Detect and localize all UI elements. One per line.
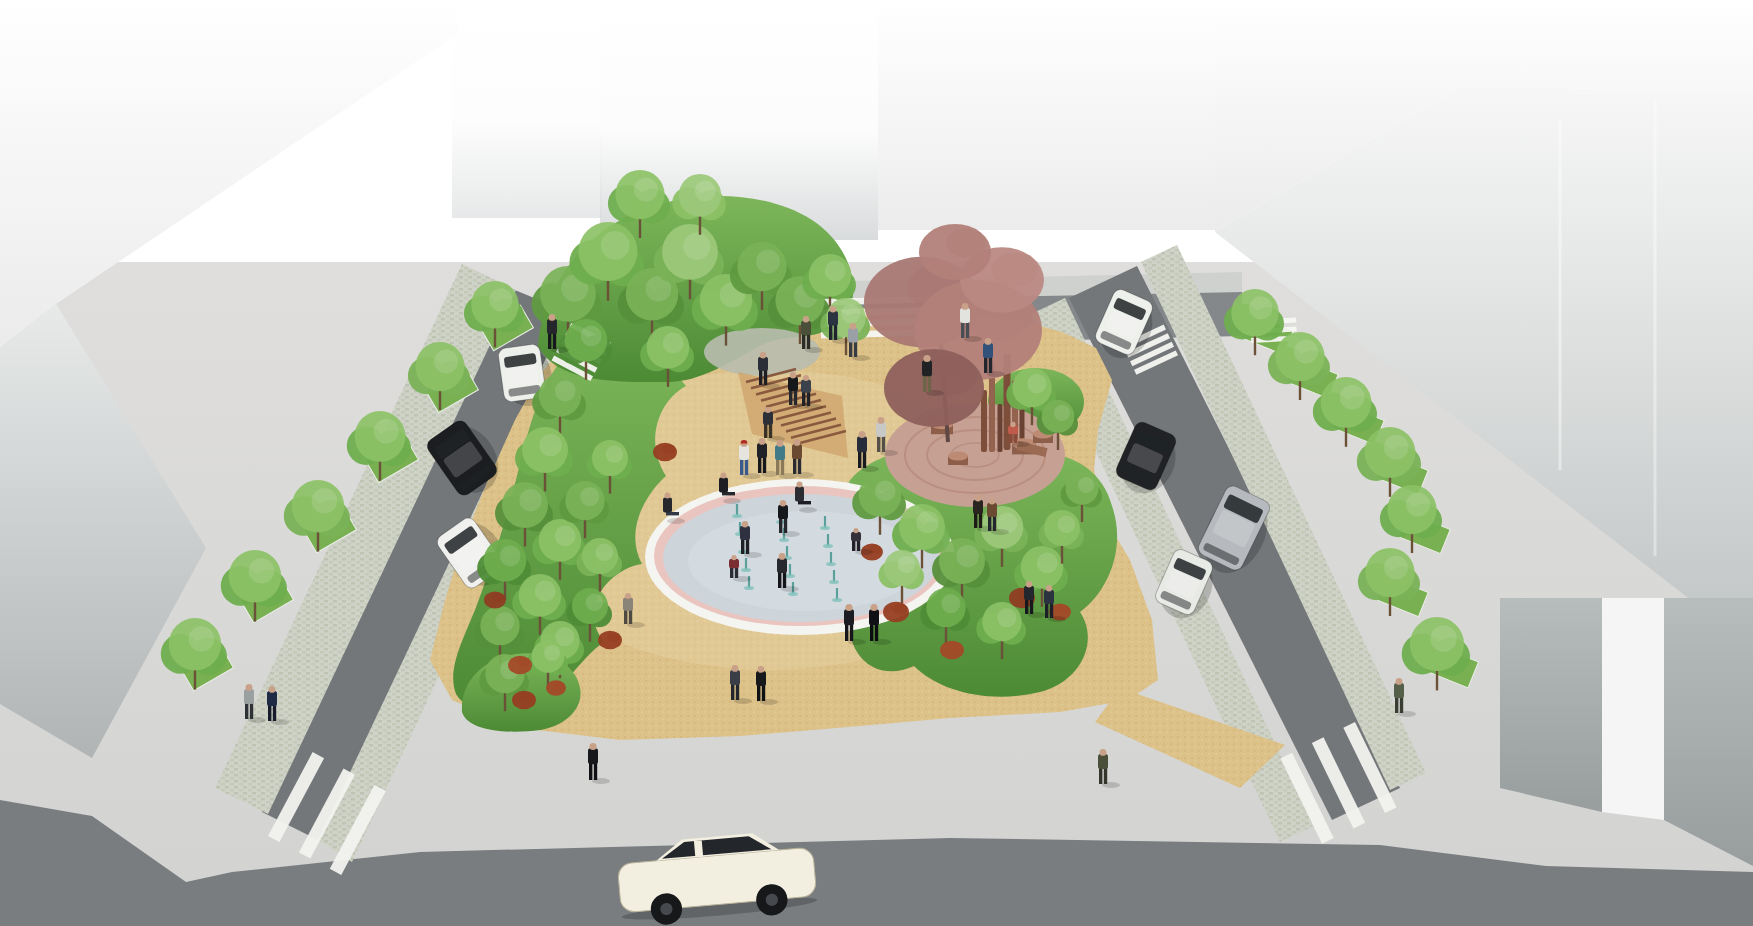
red-shrub bbox=[508, 656, 532, 675]
red-shrub bbox=[653, 443, 677, 462]
red-shrub bbox=[512, 691, 536, 710]
building-slab-sw-gray bbox=[1500, 598, 1602, 812]
maple-canopy bbox=[884, 349, 984, 427]
play-pole bbox=[998, 404, 1003, 452]
building-slab-sw-white bbox=[1602, 598, 1664, 820]
red-shrub bbox=[940, 641, 964, 660]
backdrop-building-left-hint bbox=[452, 0, 602, 218]
site-plan-rendering bbox=[0, 0, 1753, 926]
red-shrub bbox=[883, 602, 909, 622]
red-shrub bbox=[484, 591, 506, 608]
building-slab-se-gray bbox=[1664, 598, 1753, 866]
architectural-rendering bbox=[0, 0, 1753, 926]
play-pole bbox=[981, 390, 987, 452]
stump-seat bbox=[948, 452, 968, 466]
building-top-center-right bbox=[878, 0, 1215, 230]
red-shrub bbox=[546, 680, 566, 696]
red-shrub bbox=[598, 631, 622, 650]
maple-canopy bbox=[919, 224, 991, 280]
